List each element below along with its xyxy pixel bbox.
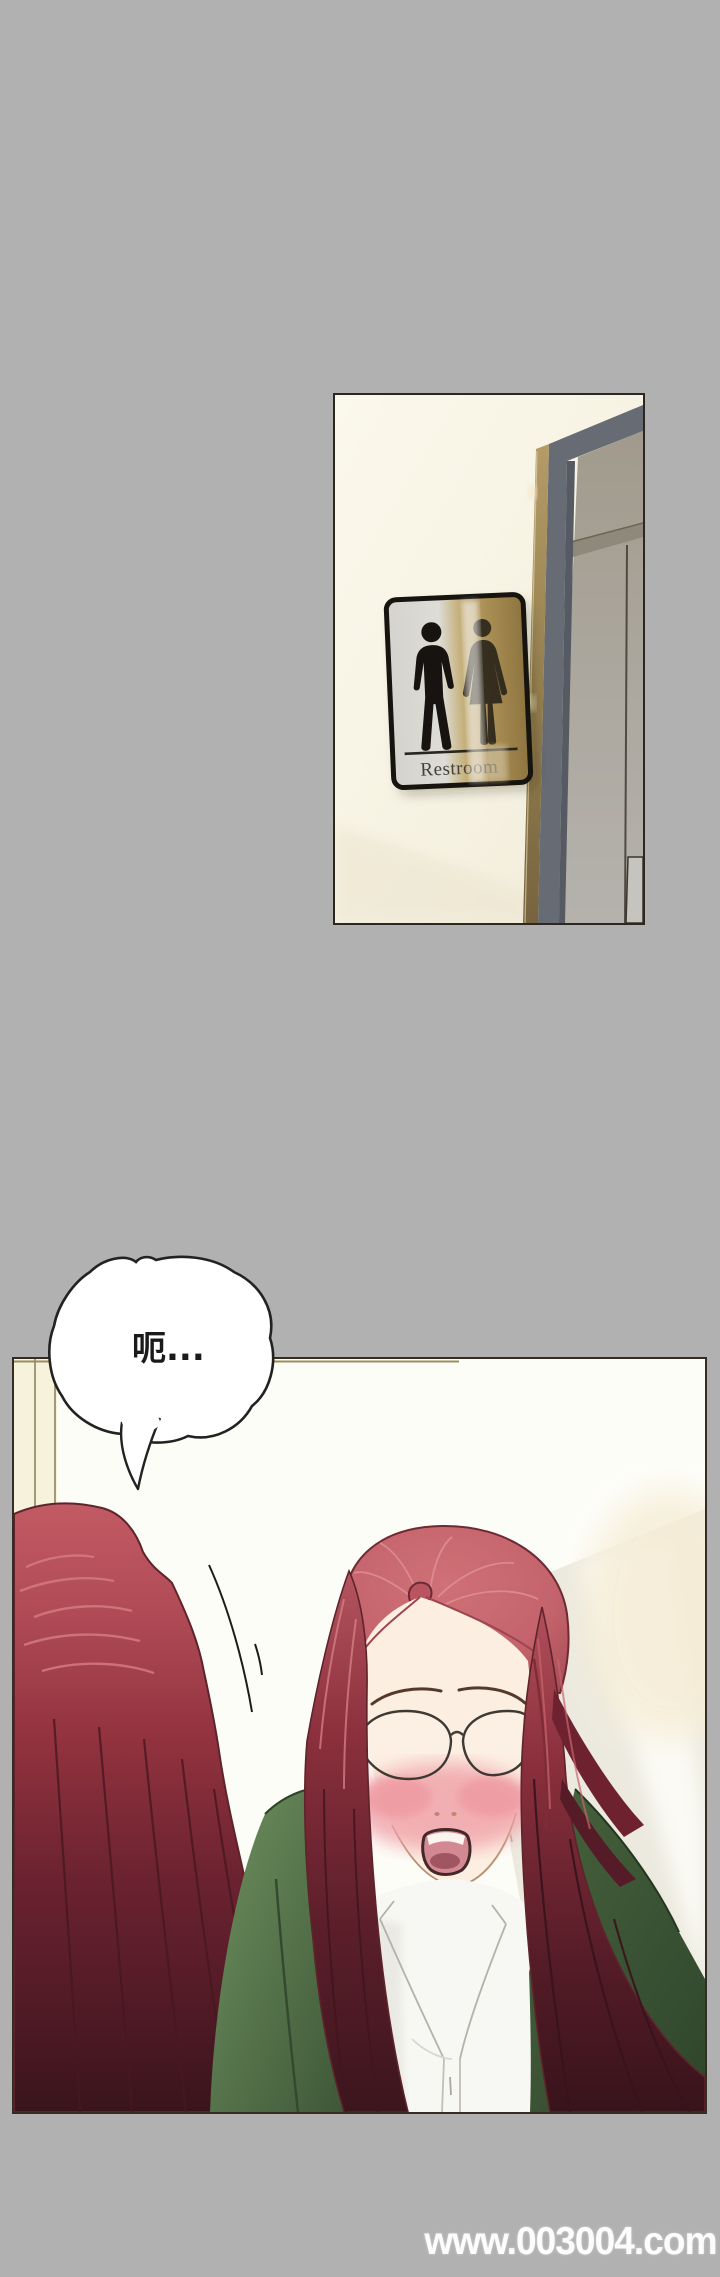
trim-reflection — [528, 485, 537, 499]
restroom-scene: Restroom — [335, 395, 643, 923]
speech-bubble-text: 呃... — [132, 1329, 205, 1369]
mouth-inner — [430, 1853, 460, 1869]
watermark-text: www.003004.com — [425, 2220, 717, 2264]
blush-right — [458, 1777, 526, 1817]
comic-page: Restroom — [0, 0, 720, 2277]
nostril-right — [451, 1812, 456, 1816]
restroom-photo-panel: Restroom — [333, 393, 645, 925]
speech-bubble-svg: 呃... — [38, 1246, 290, 1502]
buttonhole — [450, 2077, 451, 2095]
nostril-left — [434, 1812, 439, 1816]
speech-bubble: 呃... — [38, 1246, 290, 1502]
bubble-tail-joint — [122, 1412, 160, 1432]
door-step — [626, 857, 643, 923]
mouth — [423, 1830, 470, 1875]
restroom-sign: Restroom — [386, 594, 536, 795]
sign-text-glare — [484, 745, 508, 782]
blush-left — [363, 1777, 431, 1817]
door-frame — [523, 405, 643, 923]
